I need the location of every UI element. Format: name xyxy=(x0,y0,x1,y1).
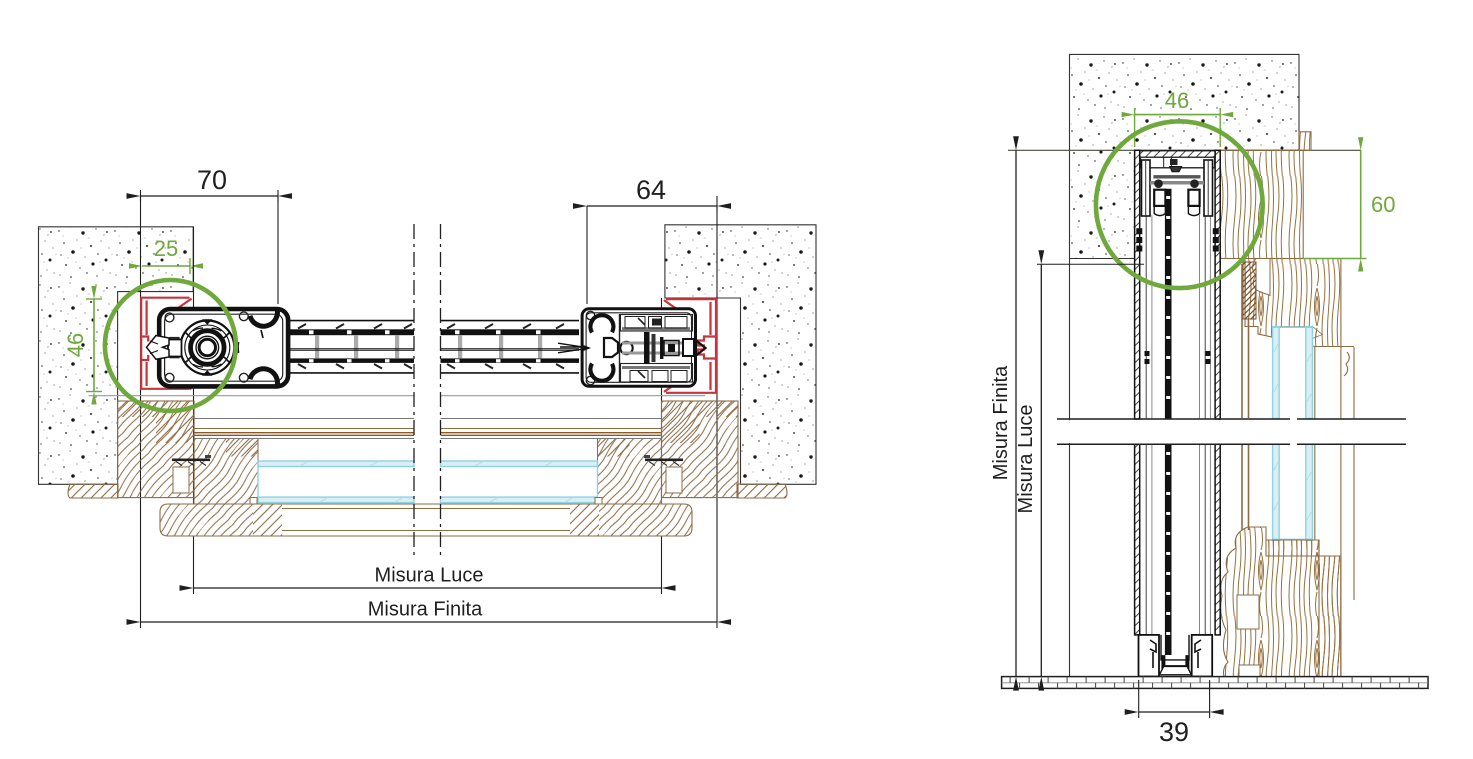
svg-text:Misura Finita: Misura Finita xyxy=(368,599,483,621)
svg-text:46: 46 xyxy=(63,333,88,357)
svg-text:Misura Finita: Misura Finita xyxy=(990,365,1012,480)
svg-text:25: 25 xyxy=(154,236,178,261)
svg-text:70: 70 xyxy=(197,165,227,195)
svg-text:Misura Luce: Misura Luce xyxy=(1015,405,1037,514)
svg-text:39: 39 xyxy=(1159,717,1189,747)
svg-text:60: 60 xyxy=(1371,192,1395,217)
svg-text:Misura Luce: Misura Luce xyxy=(375,565,484,587)
svg-text:46: 46 xyxy=(1165,88,1189,113)
svg-text:64: 64 xyxy=(636,175,666,205)
